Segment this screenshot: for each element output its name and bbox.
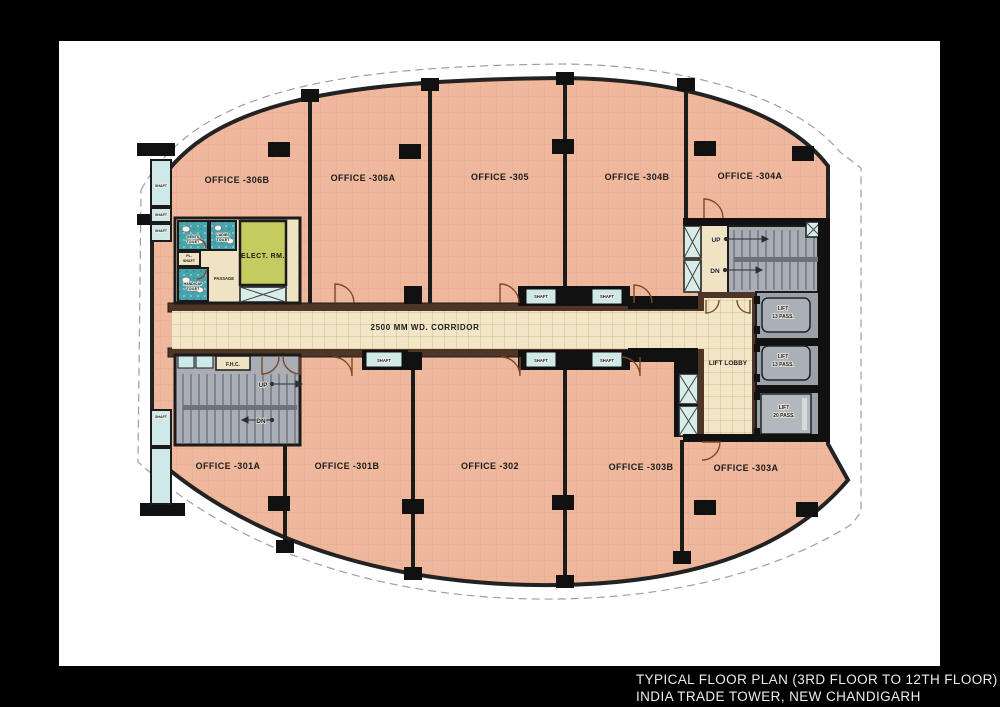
corridor-label: 2500 MM WD. CORRIDOR bbox=[371, 323, 480, 332]
stair-landing bbox=[183, 405, 297, 410]
passage-label: PASSAGE bbox=[214, 276, 234, 281]
lift-13pass-label: 13 PASS. bbox=[772, 362, 794, 368]
left-stair-core bbox=[175, 355, 302, 445]
plumbing-shaft-label: PL. bbox=[186, 254, 192, 258]
lift-20pass-label: 20 PASS. bbox=[773, 413, 795, 419]
office-label-304a: OFFICE -304A bbox=[718, 171, 783, 181]
shaft-label: SHAFT bbox=[155, 229, 168, 233]
office-label-304b: OFFICE -304B bbox=[605, 172, 670, 182]
shaft-label: SHAFT bbox=[155, 213, 168, 217]
handicap-toilet-label: HANDICAP bbox=[184, 282, 204, 286]
ladies-toilet-label: LADIES bbox=[216, 233, 230, 237]
dn-label: DN bbox=[256, 418, 266, 425]
handicap-toilet-label: TOILET bbox=[187, 287, 201, 291]
office-label-303b: OFFICE -303B bbox=[609, 462, 674, 472]
fhc-label: F.H.C. bbox=[226, 362, 241, 368]
office-label-306b: OFFICE -306B bbox=[205, 175, 270, 185]
office-label-301b: OFFICE -301B bbox=[315, 461, 380, 471]
floor-plan-canvas: OFFICE -306B OFFICE -306A OFFICE -305 OF… bbox=[0, 0, 1000, 707]
office-label-305: OFFICE -305 bbox=[471, 172, 529, 182]
office-label-303a: OFFICE -303A bbox=[714, 463, 779, 473]
gents-toilet-label: TOILET bbox=[187, 240, 201, 244]
title-line-1: TYPICAL FLOOR PLAN (3RD FLOOR TO 12TH FL… bbox=[636, 672, 998, 687]
electrical-room-label: ELECT. RM. bbox=[241, 253, 285, 260]
lift-20pass-label: LIFT bbox=[779, 405, 790, 411]
dn-label: DN bbox=[710, 268, 720, 275]
lift-13pass-label: 13 PASS. bbox=[772, 314, 794, 320]
office-label-306a: OFFICE -306A bbox=[331, 173, 396, 183]
lift-13pass-label: LIFT bbox=[778, 306, 789, 312]
shaft-label: SHAFT bbox=[534, 294, 548, 299]
lift-13pass-label: LIFT bbox=[778, 354, 789, 360]
drawing-sheet: OFFICE -306B OFFICE -306A OFFICE -305 OF… bbox=[0, 0, 1000, 707]
title-line-2: INDIA TRADE TOWER, NEW CHANDIGARH bbox=[636, 689, 921, 704]
lift-lobby-label: LIFT LOBBY bbox=[709, 360, 748, 367]
plumbing-shaft-label: SHAFT bbox=[183, 259, 196, 263]
stair-landing bbox=[734, 257, 818, 262]
gents-toilet-label: GENTS bbox=[187, 235, 200, 239]
ladies-toilet-label: TOILET bbox=[217, 238, 231, 242]
shaft-label: SHAFT bbox=[377, 358, 391, 363]
shaft-label: SHAFT bbox=[155, 184, 168, 188]
office-label-301a: OFFICE -301A bbox=[196, 461, 261, 471]
up-label: UP bbox=[258, 382, 268, 389]
shaft-label: SHAFT bbox=[600, 358, 614, 363]
shaft-label: SHAFT bbox=[534, 358, 548, 363]
up-label: UP bbox=[711, 237, 721, 244]
right-core bbox=[679, 218, 830, 442]
office-label-302: OFFICE -302 bbox=[461, 461, 519, 471]
shaft-label: SHAFT bbox=[155, 415, 168, 419]
ahu-shaft-crossbox bbox=[240, 287, 286, 302]
shaft-label: SHAFT bbox=[600, 294, 614, 299]
